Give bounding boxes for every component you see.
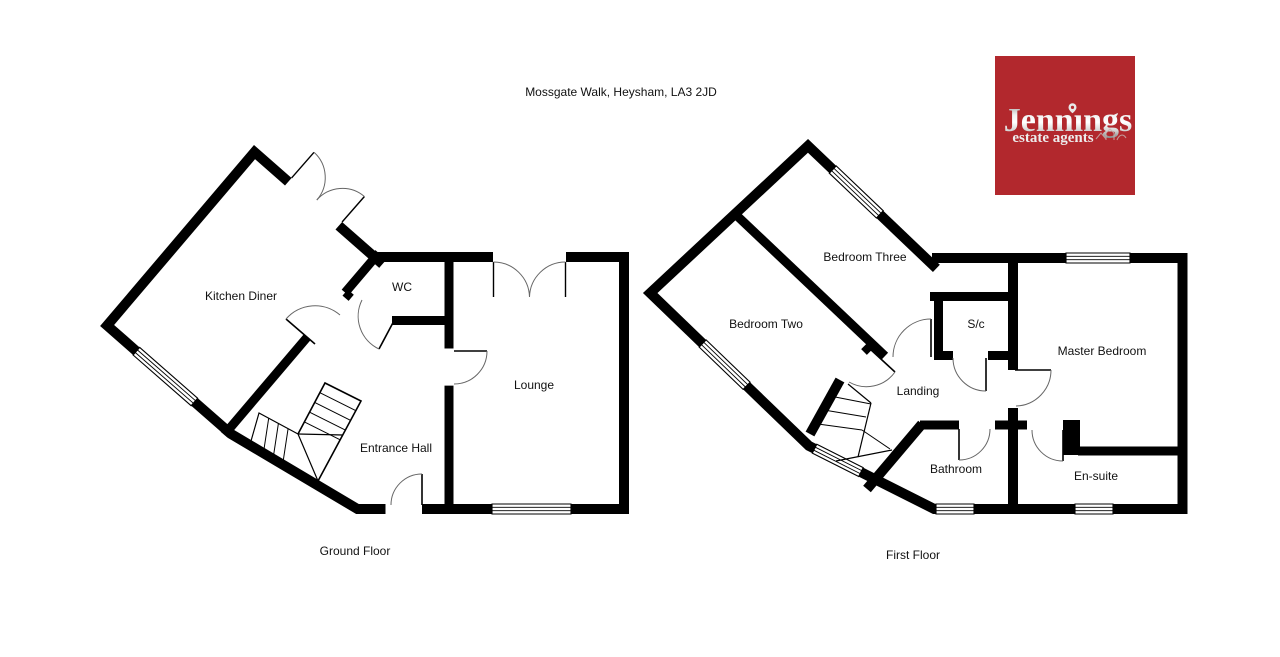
svg-text:WC: WC (392, 280, 412, 294)
svg-text:Kitchen Diner: Kitchen Diner (205, 289, 277, 303)
svg-text:Bathroom: Bathroom (930, 462, 982, 476)
svg-text:First Floor: First Floor (886, 548, 940, 562)
svg-text:Mossgate Walk, Heysham, LA3 2J: Mossgate Walk, Heysham, LA3 2JD (525, 85, 717, 99)
svg-text:Ground Floor: Ground Floor (320, 544, 391, 558)
svg-text:Master Bedroom: Master Bedroom (1058, 344, 1147, 358)
svg-text:Landing: Landing (897, 384, 940, 398)
svg-text:S/c: S/c (967, 317, 984, 331)
svg-text:Bedroom Three: Bedroom Three (823, 250, 906, 264)
svg-text:Lounge: Lounge (514, 378, 554, 392)
svg-text:Bedroom Two: Bedroom Two (729, 317, 803, 331)
svg-text:Entrance Hall: Entrance Hall (360, 441, 432, 455)
svg-text:estate agents: estate agents (1012, 130, 1093, 146)
svg-text:En-suite: En-suite (1074, 469, 1118, 483)
